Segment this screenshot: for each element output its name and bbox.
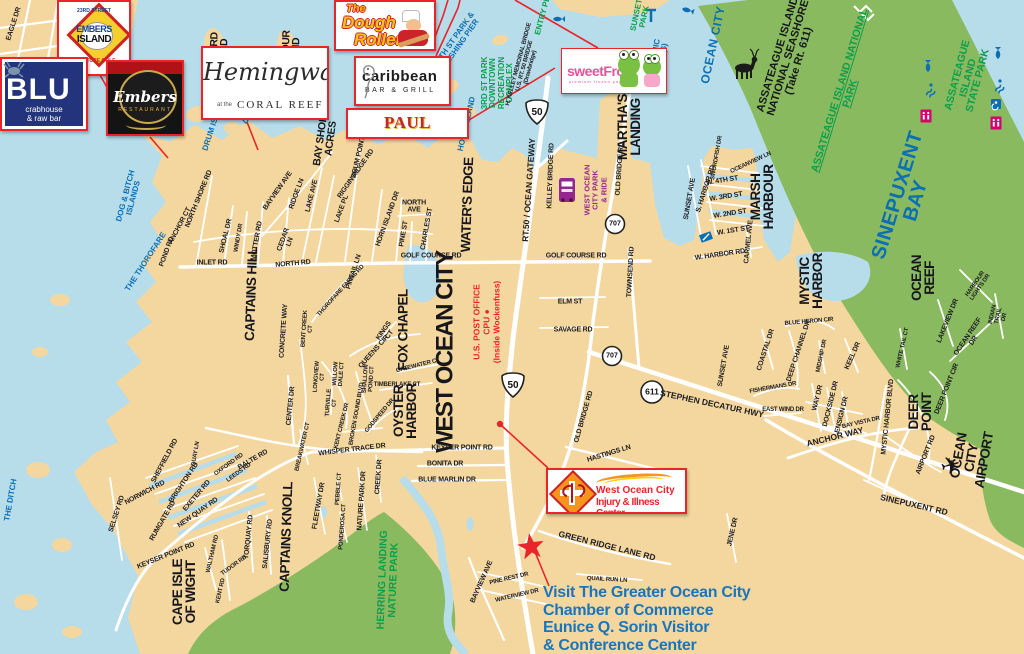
map-label: MYSTIC HARBOR xyxy=(799,253,825,309)
map-label: HARBOUR LIGHTS DR xyxy=(960,264,997,309)
map-label: OCEAN REEF DR xyxy=(950,313,992,365)
chamber-line: Eunice Q. Sorin Visitor xyxy=(543,619,803,637)
map-label: RIGGIN RIDGE RD xyxy=(336,148,375,200)
map-label: ✈ xyxy=(938,452,964,481)
embers-tagline: RESTAURANT xyxy=(108,107,182,113)
map-label: GATEWATER CT xyxy=(396,358,441,375)
map-label: THE DITCH xyxy=(3,478,19,521)
map-label: RIDGE LN xyxy=(288,178,306,210)
map-label: NORTH AVE xyxy=(402,200,426,215)
map-label: RT.50 / OCEAN GATEWAY xyxy=(521,138,537,242)
map-label: JENE DR xyxy=(726,517,740,547)
map-label: 707 xyxy=(609,220,621,227)
ad-caribbean-bar-grill[interactable]: caribbean BAR & GRILL xyxy=(354,56,451,106)
map-label: BLUE MARLIN DR xyxy=(418,476,475,483)
map-label: CAPTAINS KNOLL xyxy=(279,482,296,592)
map-label: OCEAN CITY xyxy=(699,5,728,85)
map-label: ASSATEAGUE ISLAND NATIONAL SEASHORE (Tak… xyxy=(755,0,822,121)
ad-text: EMBERS xyxy=(59,24,129,34)
map-label: PINE REST DR xyxy=(489,572,529,587)
map-label: ASSATEAGUE ISLAND NATIONAL PARK xyxy=(809,3,882,180)
map-label: QUAY LN xyxy=(191,441,201,467)
map-label: STEPHEN DECATUR HWY xyxy=(659,389,764,420)
map-label: FOX CHAPEL xyxy=(398,289,411,370)
injury-center-text: West Ocean City xyxy=(596,485,675,496)
map-label: WATER'S EDGE xyxy=(460,157,476,252)
map-label: WHITE TAIL CT xyxy=(895,327,910,368)
map-label: SALISBURY RD xyxy=(262,519,274,569)
map-label: 3RD ST PARK DOWNTOWN RECREATION COMPLEX xyxy=(481,57,515,110)
map-label: MARSH HARBOUR xyxy=(750,165,776,230)
map-label: WHISPER TRACE DR xyxy=(318,442,386,457)
chamber-line: & Conference Center xyxy=(543,637,803,654)
map-label: S. HARBOR RD xyxy=(695,165,717,214)
map-label: BREAKWATER CT xyxy=(294,422,311,472)
map-label: BLUE HERON CIR xyxy=(784,317,833,327)
map-label: GOLF COURSE RD xyxy=(546,252,607,259)
map-label: GOLF COURSE RD xyxy=(401,252,462,259)
map-label: MOTTER RD xyxy=(250,221,264,261)
map-label: BALTE RD xyxy=(237,449,269,472)
map-label: SWORDFISH DR xyxy=(710,135,724,180)
map-label: SINEPUXENT BAY xyxy=(869,129,944,267)
ad-embers-restaurant[interactable]: Embers RESTAURANT xyxy=(106,60,184,136)
map-label: QUEENS CIR xyxy=(357,334,390,370)
embers-swoosh-icon xyxy=(126,120,166,130)
map-label: NORTH SHORE RD xyxy=(184,169,214,228)
map-label: 50 xyxy=(531,108,542,118)
map-label: HASTINGS LN xyxy=(586,444,631,464)
map-label: CREEK DR xyxy=(374,459,384,494)
map-label: BAYVIEW AVE xyxy=(262,170,294,211)
ad-hemingways[interactable]: Hemingway's at the CORAL REEF xyxy=(201,46,329,120)
map-label: COASTAL DR xyxy=(756,328,776,371)
map-label: WEST OCEAN CITY PARK & RIDE xyxy=(584,165,609,216)
map-label: BROKEN SOUND BLVD xyxy=(348,382,365,446)
map-label: CAPTAINS HILL xyxy=(244,247,260,341)
map-label: RUMGATE RD xyxy=(149,500,178,543)
map-label: CONCRETE WAY xyxy=(278,304,289,359)
map-label: BAY VISTA DR xyxy=(841,416,880,431)
map-canvas: DOG & BITCH ISLANDSTHE THOROFARETHE DITC… xyxy=(0,0,1024,654)
blu-tagline: crabhouse& raw bar xyxy=(2,105,86,123)
map-label: CEDAR LN xyxy=(276,227,298,254)
chamber-of-commerce-note: Visit The Greater Ocean City Chamber of … xyxy=(543,584,803,654)
map-label: MIDSHIP DR xyxy=(815,339,828,373)
map-label: HERRING LANDING NATURE PARK xyxy=(376,530,401,630)
map-label: ENTRY PL xyxy=(534,0,552,36)
map-label: TIMBERLAKE CT xyxy=(374,382,420,388)
map-label: GREEN RIDGE LANE RD xyxy=(558,530,657,563)
map-label: THE THOROFARE xyxy=(124,231,168,293)
map-label: INDIAN TRAIL DR xyxy=(987,302,1011,331)
map-label: SHALLOW POND CT xyxy=(362,364,376,394)
map-label: BRIGHTON RD xyxy=(168,461,200,504)
map-label: THOROFARE FARMS RD xyxy=(316,264,366,318)
ad-blu-crabhouse[interactable]: BLU crabhouse& raw bar xyxy=(0,57,88,131)
map-label: WEST OCEAN CITY xyxy=(434,251,459,453)
map-label: W. 3RD ST xyxy=(709,191,743,203)
map-label: W. 4TH ST xyxy=(705,175,738,187)
map-label: H. KELLEY MEMORIAL BRIDGE U.S. RT. 50 BR… xyxy=(505,22,545,109)
map-label: WINDY DR xyxy=(233,223,244,252)
map-label: KEYSER POINT RD xyxy=(136,541,195,571)
map-label: TORQUAY RD xyxy=(243,515,255,560)
ad-sweetfrog[interactable]: sweetFrog premium frozen yogurt xyxy=(561,48,667,94)
chamber-line: Chamber of Commerce xyxy=(543,602,803,620)
map-label: W. 1ST ST xyxy=(717,225,750,237)
map-label: AIRPORT RD xyxy=(915,434,937,475)
map-label: LAKE PL xyxy=(334,194,351,223)
map-label: NORTH RD xyxy=(275,259,311,269)
map-label: WILLOW DALE CT xyxy=(332,361,346,386)
map-label: SAVAGE RD xyxy=(554,326,593,333)
map-label: DEER POINT xyxy=(908,393,934,431)
ad-injury-illness-center[interactable]: West Ocean City Injury & Illness Center xyxy=(546,468,687,514)
map-label: TUDOR RD xyxy=(220,555,248,578)
map-label: KENT CREEK DR xyxy=(333,403,350,450)
map-label: 50 xyxy=(507,381,518,391)
map-label: PINTAIL LN xyxy=(345,254,363,290)
map-label: PONDEROSA CT xyxy=(338,504,347,550)
crab-icon xyxy=(2,59,26,79)
map-label: NATURE PARK DR xyxy=(356,471,367,531)
map-label: SUNSET AVE xyxy=(717,345,731,388)
hemingways-at-text: at the xyxy=(217,102,232,108)
ad-text: 23RD STREET xyxy=(59,8,129,14)
map-label: OXFORD RD xyxy=(213,452,244,477)
map-label: FLEETWAY DR xyxy=(311,482,326,530)
map-label: PINE ST xyxy=(398,221,410,248)
map-label: LAKE AVE xyxy=(304,179,319,213)
frog-body xyxy=(620,73,638,87)
map-label: KEEL DR xyxy=(844,341,863,371)
map-label: CHARLES ST xyxy=(420,207,435,250)
map-label: GODSPEED DR xyxy=(364,398,396,434)
map-label: LEEDS RD xyxy=(226,462,253,484)
map-label: FISHERMANS DR xyxy=(749,381,797,395)
map-label: W. HARBOR RD xyxy=(694,248,745,262)
map-label: OLD BRIDGE RD xyxy=(615,142,626,196)
chamber-line: Visit The Greater Ocean City xyxy=(543,584,803,602)
map-label: CARMEL AVE xyxy=(743,220,755,264)
map-label: TURVILLE CT xyxy=(325,389,339,417)
map-label: LAKEVIEW DR xyxy=(936,298,960,344)
map-label: SHOAL DR xyxy=(218,218,233,254)
ad-text: ISLAND xyxy=(59,34,129,45)
map-label: NEW QUAY RD xyxy=(176,496,219,529)
map-label: CENTER DR xyxy=(285,386,296,426)
map-label: KELLEY BRIDGE RD xyxy=(546,143,556,209)
map-label: INLET RD xyxy=(197,259,228,266)
map-label: HORN ISLAND DR xyxy=(375,191,402,248)
map-label: ENSIGN DR xyxy=(834,396,850,434)
map-label: CAPE ISLE OF WIGHT xyxy=(172,559,198,625)
map-label: KINGS CT xyxy=(375,320,399,346)
map-label: OCEAN REEF xyxy=(911,255,937,301)
map-label: NORWICH RD xyxy=(124,479,166,506)
map-label: QUAIL RUN LN xyxy=(587,576,628,584)
paul-revere-logo-text: PAUL REVERE xyxy=(348,113,467,139)
map-label: U.S. POST OFFICE CPU ● (Inside Wockenfus… xyxy=(472,281,501,364)
map-label: SUNSET AVE xyxy=(683,178,697,221)
map-label: EAST WIND DR xyxy=(762,407,804,413)
frog-body-pink xyxy=(644,74,660,87)
parrot-icon xyxy=(356,62,378,102)
map-label: OLD BRIDGE RD xyxy=(573,390,595,443)
map-label: EAGLE DR xyxy=(5,6,23,41)
map-label: MARTHA'S LANDING xyxy=(617,94,643,160)
map-label: DEER POINT CIR xyxy=(934,363,961,416)
map-label: MYSTIC HARBOR BLVD xyxy=(880,379,895,455)
map-label: W. 2ND ST xyxy=(713,208,747,220)
map-label: DOG & BITCH ISLANDS xyxy=(115,169,145,224)
map-label: 611 xyxy=(645,388,659,397)
map-label: WAY DR xyxy=(811,384,824,411)
map-label: SHEFFIELD RD xyxy=(150,438,179,484)
map-label: KENT RD xyxy=(215,578,227,604)
hemingways-subtitle: CORAL REEF xyxy=(237,99,324,111)
map-label: BENT CREEK CT xyxy=(300,310,315,348)
map-label: LONGVIEW CT xyxy=(313,361,328,393)
map-label: PEBBLE CT xyxy=(335,473,343,506)
chef-icon xyxy=(394,10,430,48)
map-label: OCEANVIEW LN xyxy=(730,151,773,175)
map-label: WALTHAM RD xyxy=(206,535,221,574)
map-label: SINEPUXENT RD xyxy=(879,493,948,517)
embers-logo-text: Embers xyxy=(108,88,182,106)
map-label: ELM ST xyxy=(558,298,582,305)
map-label: BONITA DR xyxy=(427,460,463,467)
ad-paul-revere[interactable]: PAUL REVERE xyxy=(346,108,469,139)
map-label: KEYSER POINT RD xyxy=(431,444,492,451)
map-label: DOCKSIDE DR xyxy=(822,380,840,427)
map-label: ANCHOR CT xyxy=(167,207,192,246)
map-label: ASSATEAGUE ISLAND STATE PARK xyxy=(943,39,993,117)
map-label: POND RD xyxy=(158,236,175,268)
map-label: SUNSET PARK xyxy=(629,0,652,34)
hemingways-logo-text: Hemingway's xyxy=(203,58,327,86)
map-label: OCEAN CITY AIRPORT xyxy=(948,427,996,489)
map-label: TOWNSEND RD xyxy=(626,247,636,298)
map-label: OYSTER HARBOR xyxy=(393,383,419,439)
map-label: BAYVIEW AVE xyxy=(469,560,494,604)
map-label: 707 xyxy=(606,352,618,359)
map-label: WATERVIEW DR xyxy=(495,588,540,604)
map-label: DEEP CHANNEL DR xyxy=(786,319,813,382)
injury-center-text: Injury & Illness Center xyxy=(596,497,685,514)
ad-dough-roller[interactable]: The Dough Roller xyxy=(334,0,436,51)
map-label: SELSEY RD xyxy=(108,495,127,533)
map-label: ANCHOR WAY xyxy=(806,426,865,449)
map-label: EXETER RD xyxy=(182,479,212,513)
